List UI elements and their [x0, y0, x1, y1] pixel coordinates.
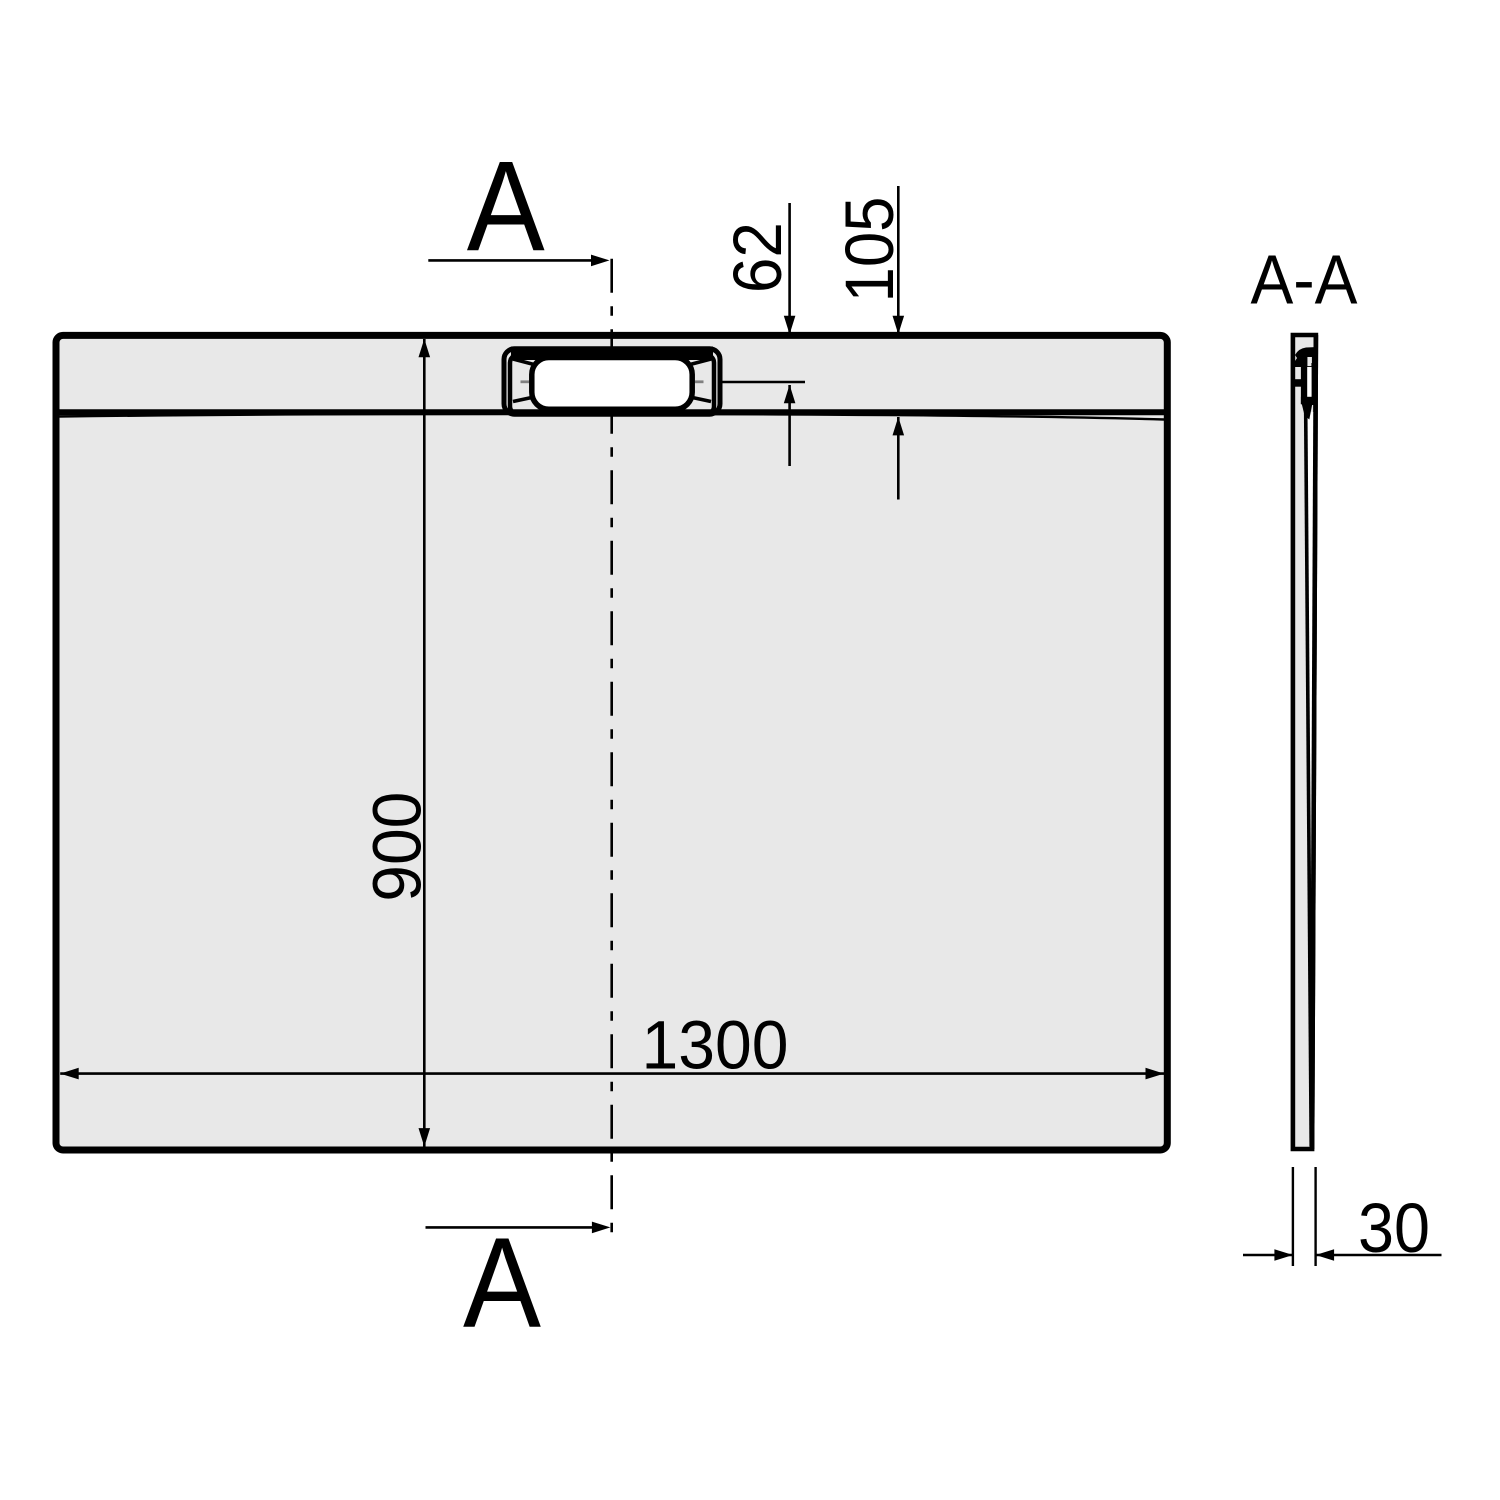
svg-text:A-A: A-A [1251, 241, 1358, 319]
svg-text:1300: 1300 [642, 1007, 789, 1084]
svg-text:30: 30 [1358, 1189, 1430, 1267]
svg-text:105: 105 [831, 197, 908, 303]
svg-text:62: 62 [719, 222, 796, 293]
svg-text:A: A [463, 1212, 542, 1355]
svg-text:A: A [467, 136, 546, 279]
svg-text:900: 900 [359, 792, 436, 902]
